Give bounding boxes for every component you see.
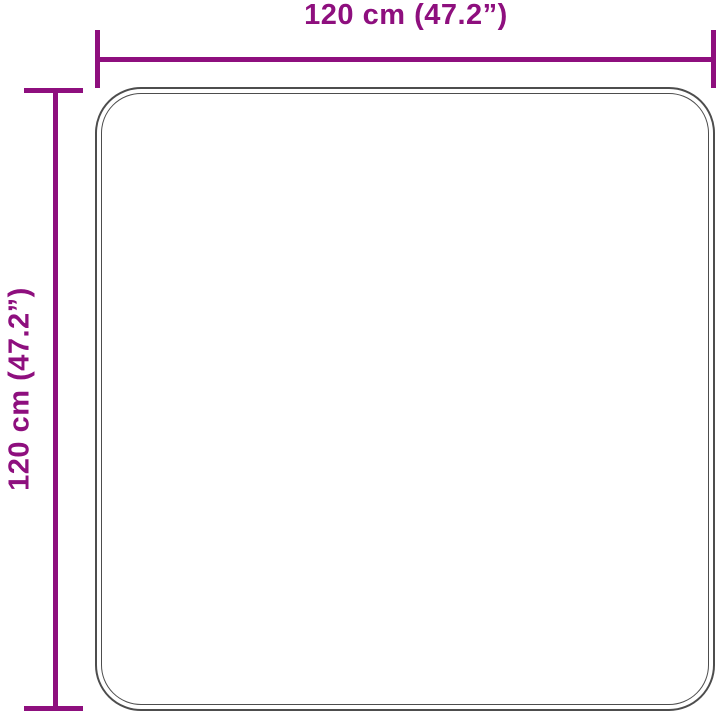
width-dimension-label: 120 cm (47.2”): [304, 1, 508, 30]
rug-outline-outer-edge: [95, 87, 715, 711]
dimension-diagram: 120 cm (47.2”) 120 cm (47.2”): [0, 0, 720, 718]
width-dimension-tick-left: [95, 30, 100, 88]
width-dimension-line: [97, 57, 715, 62]
rug-outline-inner-edge: [101, 93, 709, 705]
height-dimension-tick-bottom: [24, 706, 83, 711]
height-dimension-label: 120 cm (47.2”): [6, 287, 35, 491]
width-dimension-tick-right: [711, 30, 716, 88]
height-dimension-line: [53, 90, 58, 710]
height-dimension-tick-top: [24, 88, 83, 93]
